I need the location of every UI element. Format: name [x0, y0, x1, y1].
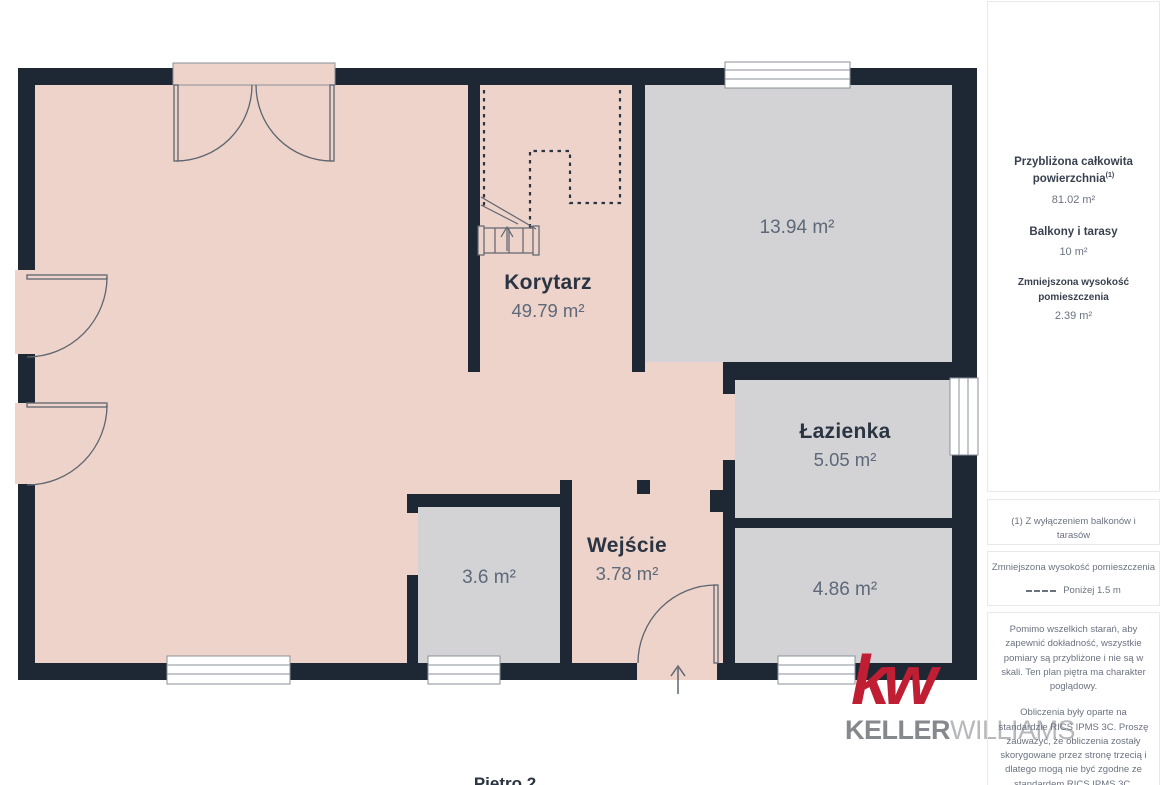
total-area-label: Przybliżona całkowita powierzchnia(1) [988, 154, 1159, 189]
reduced-height-value: 2.39 m² [988, 310, 1159, 322]
balconies-value: 10 m² [988, 246, 1159, 258]
disclaimer-card: Pomimo wszelkich starań, aby zapewnić do… [987, 612, 1160, 785]
legend-card: Zmniejszona wysokość pomieszczenia Poniż… [987, 551, 1160, 606]
reduced-height-label: Zmniejszona wysokość pomieszczenia [988, 275, 1159, 305]
disclaimer-accuracy: Pomimo wszelkich starań, aby zapewnić do… [988, 613, 1159, 694]
floor-title: Piętro 2 [445, 774, 565, 785]
legend-row: Poniżej 1.5 m [988, 584, 1159, 598]
room-area-lazienka: 5.05 m² [814, 449, 877, 471]
legend-title: Zmniejszona wysokość pomieszczenia [988, 552, 1159, 575]
legend-label: Poniżej 1.5 m [1063, 584, 1121, 598]
footnote-card: (1) Z wyłączeniem balkonów i tarasów [987, 499, 1160, 545]
room-label-lazienka: Łazienka [799, 420, 890, 444]
room-area-13: 13.94 m² [760, 217, 835, 239]
room-area-36: 3.6 m² [462, 567, 516, 589]
dashed-line-sample-icon [1026, 590, 1056, 592]
summary-card: Przybliżona całkowita powierzchnia(1) 81… [987, 1, 1160, 492]
footnote-text: (1) Z wyłączeniem balkonów i tarasów [988, 500, 1159, 544]
total-area-value: 81.02 m² [988, 194, 1159, 206]
disclaimer-standard: Obliczenia były oparte na standardzie RI… [988, 694, 1159, 785]
room-area-wejscie: 3.78 m² [596, 563, 659, 585]
room-label-wejscie: Wejście [587, 534, 667, 558]
footnote-marker: (1) [1106, 172, 1115, 179]
balconies-label: Balkony i tarasy [988, 224, 1159, 241]
floor-plan-drawing [0, 0, 985, 785]
room-label-korytarz: Korytarz [504, 271, 592, 295]
room-area-korytarz: 49.79 m² [511, 300, 584, 322]
room-area-486: 4.86 m² [813, 579, 877, 601]
floorplan-page: Korytarz 49.79 m² 13.94 m² Łazienka 5.05… [0, 0, 1170, 785]
